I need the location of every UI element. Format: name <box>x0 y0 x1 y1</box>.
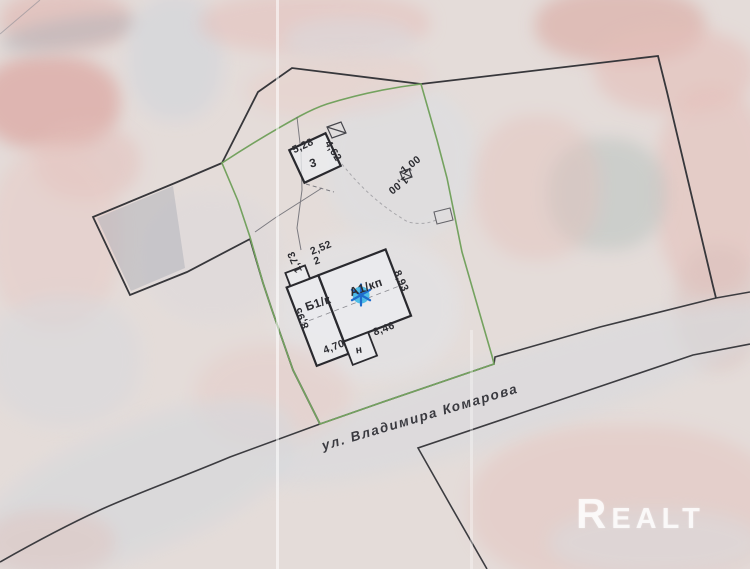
map-line <box>0 0 40 34</box>
scanned-plot-plan: 5,28 4,62 3 2,52 1,73 2 Б1/к 8,95 4,70 А… <box>0 0 750 569</box>
fence-lines <box>255 117 438 250</box>
shaded-area <box>97 186 185 291</box>
paper-crease <box>276 0 279 569</box>
small-structure-symbol <box>327 122 346 138</box>
realt-watermark-logo: Realt <box>576 490 705 538</box>
paper-crease <box>470 330 473 569</box>
buildings <box>282 133 420 377</box>
bracket-symbol <box>434 208 453 224</box>
plot-boundary <box>93 56 716 424</box>
green-boundary <box>222 84 494 424</box>
